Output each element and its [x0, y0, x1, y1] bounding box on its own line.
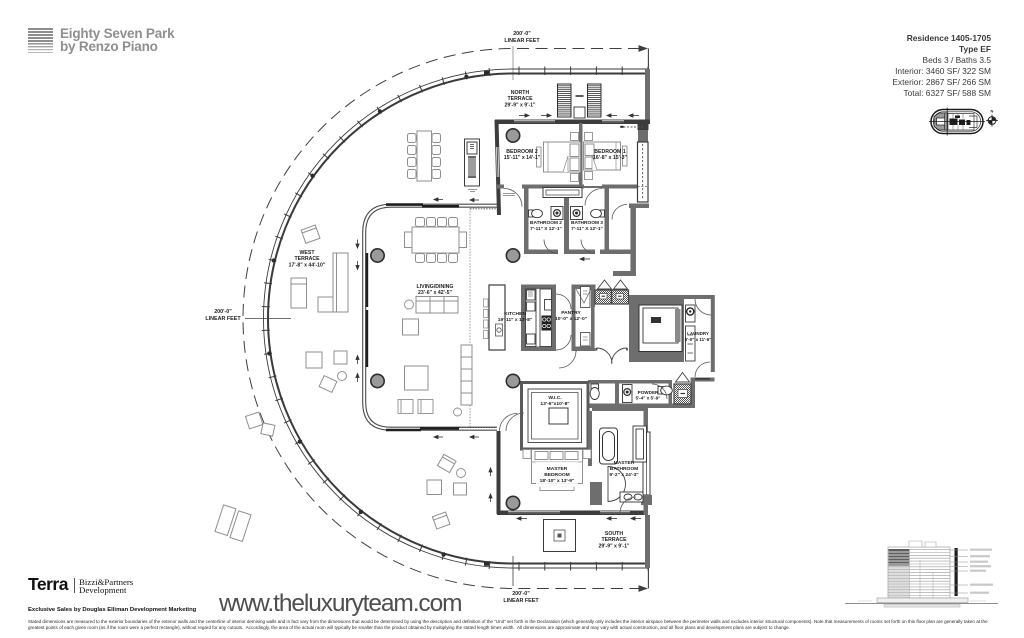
- svg-text:23'-6" x 42'-5": 23'-6" x 42'-5": [418, 290, 452, 296]
- svg-text:TERRACE: TERRACE: [294, 256, 320, 262]
- svg-text:PANTRY: PANTRY: [561, 310, 581, 316]
- svg-text:6'-0" x 11'-6": 6'-0" x 11'-6": [685, 337, 712, 342]
- svg-text:19'-11" x 13'-8": 19'-11" x 13'-8": [498, 317, 532, 323]
- svg-text:WEST: WEST: [300, 250, 316, 256]
- svg-text:NORTH: NORTH: [511, 90, 530, 96]
- svg-text:LINEAR FEET: LINEAR FEET: [205, 316, 241, 322]
- svg-text:BEDROOM 2: BEDROOM 2: [506, 149, 538, 155]
- svg-text:TERRACE: TERRACE: [507, 96, 533, 102]
- svg-text:18'-10" x 13'-9": 18'-10" x 13'-9": [540, 478, 575, 484]
- svg-text:10'-0" x 12'-0": 10'-0" x 12'-0": [555, 316, 587, 322]
- svg-text:W.I.C.: W.I.C.: [548, 395, 562, 401]
- svg-text:LINEAR FEET: LINEAR FEET: [504, 38, 540, 44]
- svg-text:N: N: [991, 109, 994, 114]
- svg-text:BEDROOM 1: BEDROOM 1: [594, 149, 626, 155]
- svg-text:BATHROOM 2: BATHROOM 2: [530, 220, 562, 226]
- svg-text:29'-9" x 9'-1": 29'-9" x 9'-1": [598, 543, 630, 549]
- svg-text:LAUNDRY: LAUNDRY: [687, 331, 709, 336]
- svg-text:15'-11" x 14'-1": 15'-11" x 14'-1": [504, 155, 541, 161]
- svg-text:BATHROOM 3: BATHROOM 3: [571, 220, 603, 226]
- svg-text:5'-4" x 5'-9": 5'-4" x 5'-9": [636, 396, 661, 401]
- svg-text:MASTER: MASTER: [614, 460, 635, 466]
- svg-text:LINEAR FEET: LINEAR FEET: [503, 598, 539, 604]
- svg-text:LIVING/DINING: LIVING/DINING: [417, 284, 454, 290]
- svg-text:MASTER: MASTER: [547, 466, 568, 472]
- svg-text:TERRACE: TERRACE: [601, 537, 627, 543]
- svg-text:17'-8" x 44'-10": 17'-8" x 44'-10": [289, 262, 326, 268]
- svg-text:200'-0": 200'-0": [214, 309, 232, 315]
- svg-text:9'-2" x 24'-3": 9'-2" x 24'-3": [609, 472, 638, 478]
- svg-text:KITCHEN: KITCHEN: [504, 311, 526, 317]
- svg-text:BATHROOM: BATHROOM: [610, 466, 638, 472]
- svg-text:13'-6"x10'-8": 13'-6"x10'-8": [540, 401, 569, 407]
- svg-text:BEDROOM: BEDROOM: [544, 472, 570, 478]
- svg-text:7'-11" X 12'-1": 7'-11" X 12'-1": [571, 226, 603, 232]
- svg-text:29'-9" x 9'-1": 29'-9" x 9'-1": [504, 102, 536, 108]
- svg-text:7'-11" X 12'-1": 7'-11" X 12'-1": [530, 226, 562, 232]
- svg-text:POWDER: POWDER: [638, 390, 659, 395]
- svg-text:16'-8" x 15'-3": 16'-8" x 15'-3": [593, 155, 627, 161]
- svg-text:200'-0": 200'-0": [513, 31, 531, 37]
- svg-text:SOUTH: SOUTH: [605, 531, 623, 537]
- svg-text:200'-0": 200'-0": [512, 591, 530, 597]
